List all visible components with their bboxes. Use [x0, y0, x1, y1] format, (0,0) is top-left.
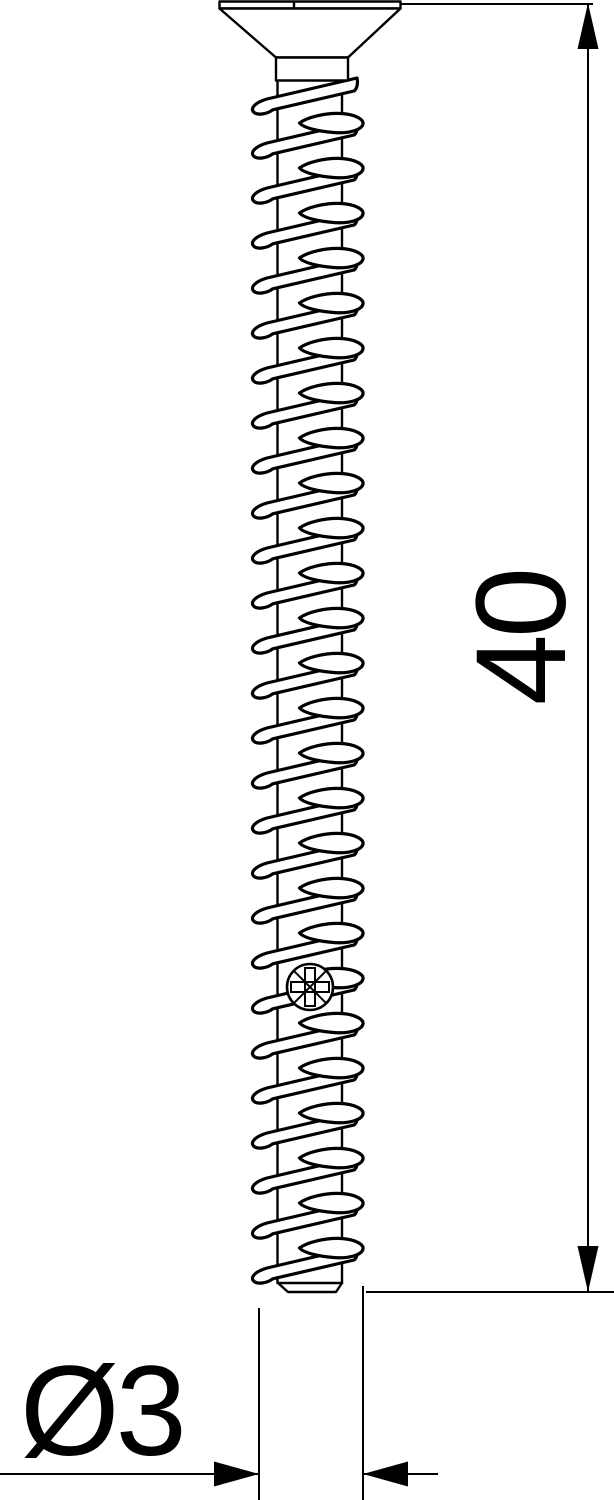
- thread-turn: [252, 1013, 363, 1058]
- screw-technical-drawing-page: 40 Ø3: [0, 0, 614, 1500]
- thread-turn: [252, 203, 363, 248]
- head-countersunk-cone: [220, 9, 401, 58]
- thread-turn: [252, 113, 363, 158]
- thread-turn: [252, 608, 363, 653]
- thread-turn: [252, 293, 363, 338]
- thread-turn: [252, 248, 363, 293]
- diameter-dimension-label: Ø3: [20, 1340, 183, 1483]
- thread-turn: [252, 1148, 363, 1193]
- thread-turn: [252, 563, 363, 608]
- pozidriv-drive-icon: [287, 964, 333, 1010]
- thread-turn: [252, 833, 363, 878]
- thread-turn: [252, 518, 363, 563]
- thread-turn: [252, 743, 363, 788]
- thread-turn: [252, 428, 363, 473]
- screw-technical-drawing: 40 Ø3: [0, 0, 614, 1500]
- thread-turn: [252, 158, 363, 203]
- screw-head: [220, 2, 401, 81]
- thread-turn: [252, 383, 363, 428]
- thread-turn: [252, 878, 363, 923]
- thread-turn: [252, 338, 363, 383]
- head-neck: [276, 58, 348, 81]
- thread-turn: [252, 698, 363, 743]
- thread-turn: [252, 1193, 363, 1238]
- thread-turn: [252, 1058, 363, 1103]
- thread-turns: [252, 78, 363, 1283]
- thread-turn: [252, 1103, 363, 1148]
- arrow-up-icon: [578, 3, 599, 49]
- screw-tip: [278, 1283, 342, 1292]
- length-dimension-label: 40: [450, 571, 593, 705]
- thread-turn: [252, 923, 363, 968]
- arrow-left-icon: [363, 1462, 408, 1487]
- thread-turn: [252, 788, 363, 833]
- arrow-right-icon: [214, 1462, 259, 1487]
- thread-turn: [252, 1238, 363, 1283]
- thread-turn: [252, 473, 363, 518]
- thread-turn: [252, 653, 363, 698]
- length-dimension: 40: [366, 3, 614, 1292]
- arrow-down-icon: [578, 1246, 599, 1292]
- diameter-dimension: Ø3: [0, 1286, 438, 1500]
